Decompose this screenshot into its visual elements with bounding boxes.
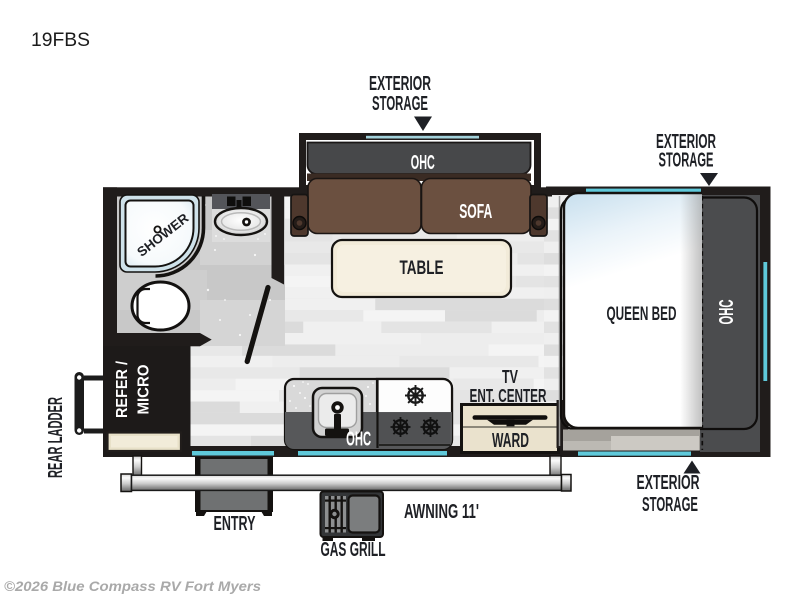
svg-text:OHC: OHC: [346, 429, 371, 451]
svg-text:AWNING 11': AWNING 11': [404, 501, 479, 523]
svg-text:WARD: WARD: [492, 430, 529, 452]
svg-text:©2026 Blue Compass RV Fort Mye: ©2026 Blue Compass RV Fort Myers: [4, 578, 261, 594]
svg-text:GAS GRILL: GAS GRILL: [321, 539, 386, 561]
svg-text:STORAGE: STORAGE: [642, 494, 698, 516]
svg-text:STORAGE: STORAGE: [659, 150, 714, 172]
svg-text:ENTRY: ENTRY: [214, 513, 256, 535]
svg-text:SOFA: SOFA: [459, 201, 492, 223]
svg-text:19FBS: 19FBS: [31, 30, 90, 51]
svg-text:REAR LADDER: REAR LADDER: [45, 397, 67, 478]
svg-text:EXTERIOR: EXTERIOR: [637, 472, 700, 494]
svg-text:ENT. CENTER: ENT. CENTER: [470, 385, 547, 406]
svg-text:TABLE: TABLE: [400, 258, 444, 279]
svg-text:EXTERIOR: EXTERIOR: [369, 73, 431, 95]
svg-text:QUEEN BED: QUEEN BED: [607, 303, 677, 325]
svg-text:OHC: OHC: [716, 300, 738, 325]
svg-text:OHC: OHC: [411, 152, 435, 174]
svg-text:REFER /: REFER /: [114, 360, 131, 418]
svg-text:STORAGE: STORAGE: [372, 93, 428, 115]
svg-text:MICRO: MICRO: [136, 365, 153, 415]
svg-text:TV: TV: [502, 366, 518, 387]
